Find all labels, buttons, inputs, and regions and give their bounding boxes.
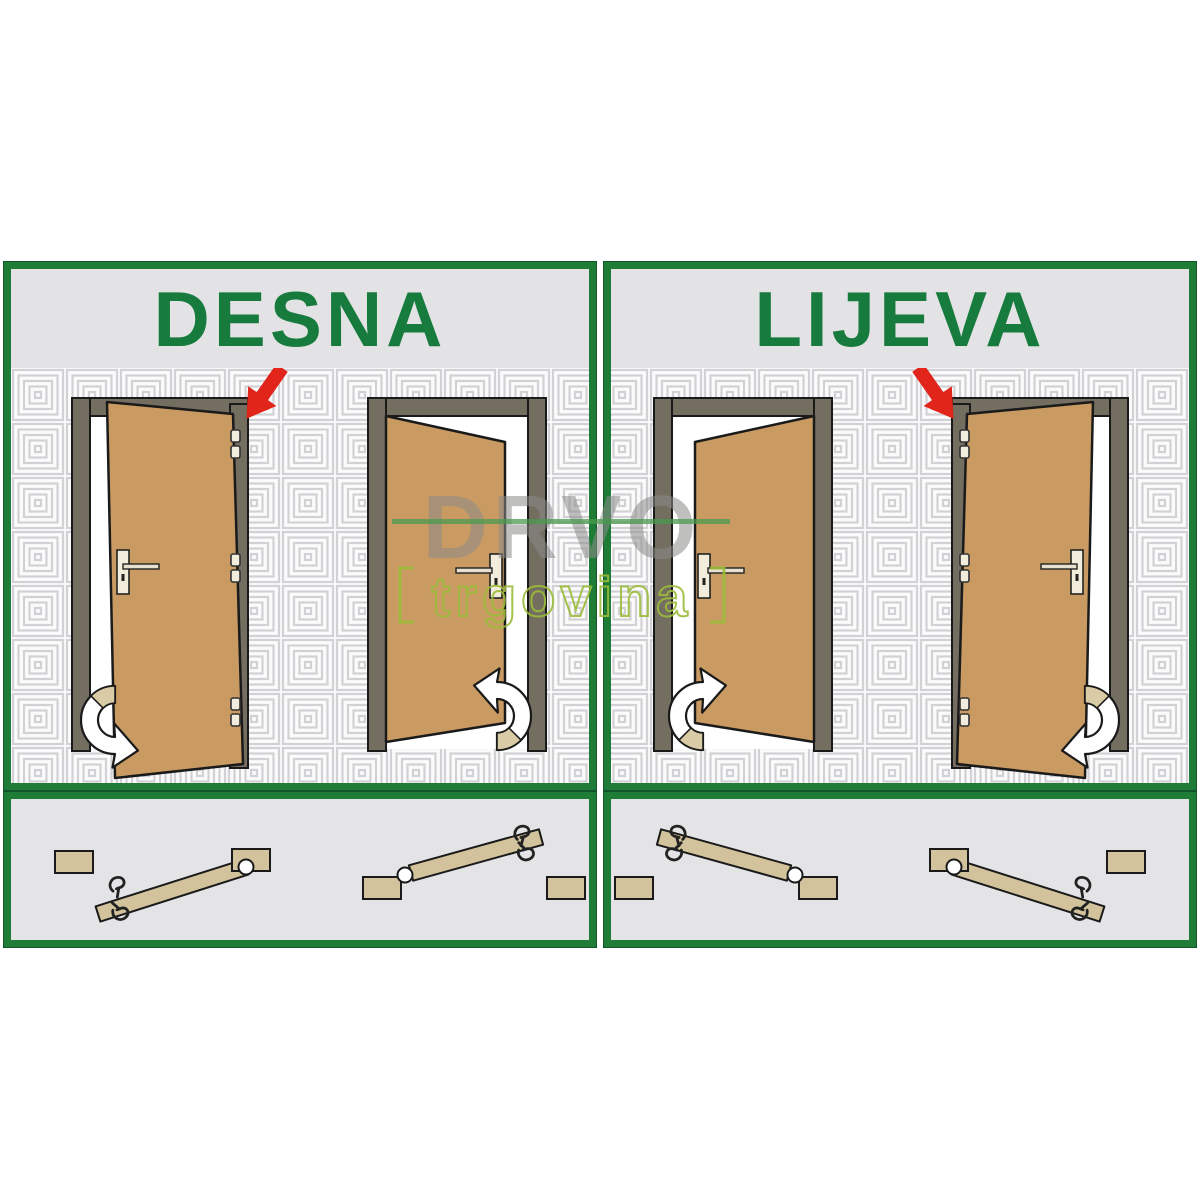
scene-lijeva-hardware — [611, 799, 1189, 940]
scene-desna-hardware — [11, 799, 589, 940]
strip-desna-hardware — [4, 792, 596, 947]
panel-title-desna: DESNA — [153, 280, 446, 358]
scene-lijeva-doors — [611, 368, 1189, 783]
panel-lijeva: LIJEVA — [604, 262, 1196, 790]
panel-lijeva-title-zone: LIJEVA — [611, 269, 1189, 368]
panel-title-lijeva: LIJEVA — [754, 280, 1045, 358]
door-handing-diagram: DESNA LIJEVA DRVO trgovina — [0, 0, 1200, 1200]
scene-desna-doors — [11, 368, 589, 783]
panel-desna-title-zone: DESNA — [11, 269, 589, 368]
panel-desna: DESNA — [4, 262, 596, 790]
strip-lijeva-hardware — [604, 792, 1196, 947]
